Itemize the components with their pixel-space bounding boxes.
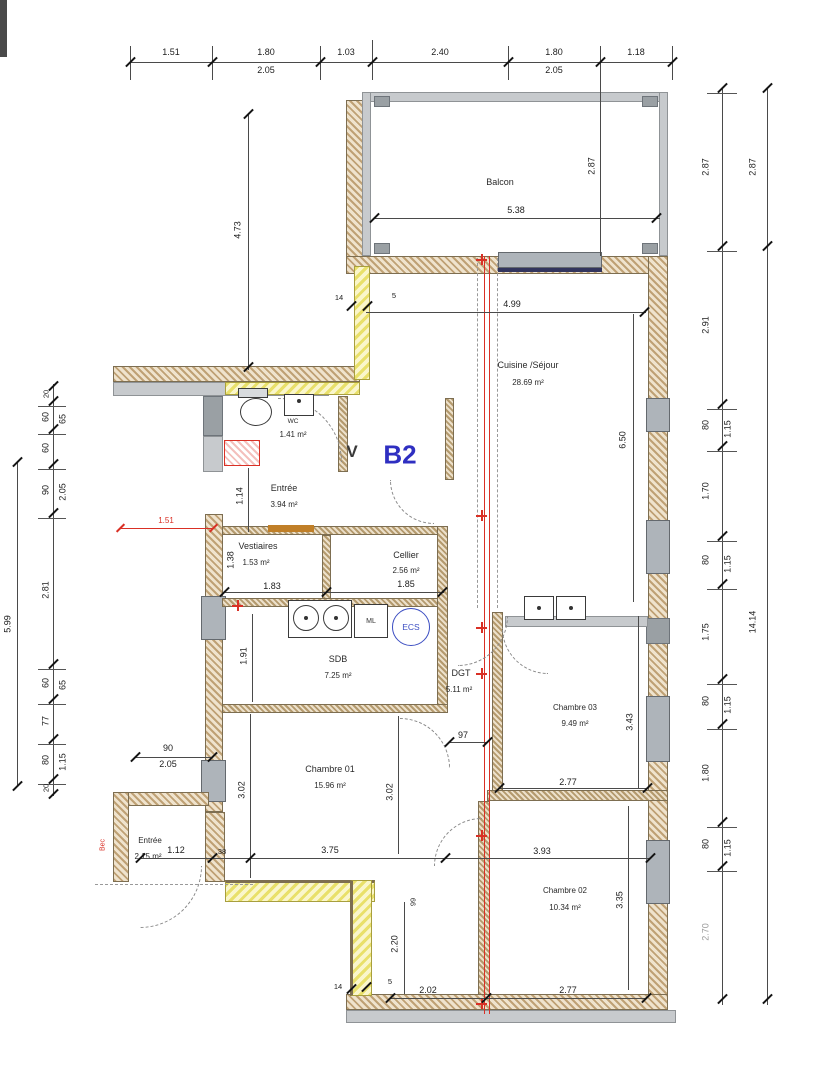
dim-line [53, 384, 54, 796]
balcony-post [374, 243, 390, 254]
dim-stub [38, 669, 66, 670]
door-arc [140, 866, 202, 928]
room-name: Cuisine /Séjour [497, 360, 558, 370]
room-area: 15.96 m² [314, 781, 346, 790]
faucet-dot [297, 399, 301, 403]
wall-segment [113, 366, 360, 382]
balcony-rail [659, 92, 668, 256]
dim-stub [38, 744, 66, 745]
dim-label: 2.05 [257, 66, 275, 75]
dim-label: 80 [702, 839, 711, 849]
dim-guide [600, 46, 601, 256]
window [646, 398, 670, 432]
dim-label: 1.15 [724, 420, 733, 438]
dim-line [398, 716, 399, 854]
drain-dot [569, 606, 573, 610]
dim-stub [38, 518, 66, 519]
dim-label: 1.38 [227, 551, 236, 569]
dim-label: 77 [42, 716, 51, 726]
dim-line [638, 616, 639, 788]
water-heater-label: ECS [402, 622, 419, 632]
room-area: 1.41 m² [279, 430, 306, 439]
dim-stub [707, 251, 737, 252]
dim-label: 80 [702, 696, 711, 706]
drain-dot [334, 616, 338, 620]
toilet-tank [238, 388, 268, 398]
room-area: 2.56 m² [392, 566, 419, 575]
dim-line [628, 806, 629, 990]
room-name: Cellier [393, 550, 419, 560]
room-area: 3.94 m² [270, 500, 297, 509]
dim-label: 1.15 [724, 555, 733, 573]
annotation-red: Bec [100, 839, 107, 851]
dim-label: 2.05 [159, 760, 177, 769]
dim-line [390, 998, 646, 999]
dim-label: 2.20 [391, 935, 400, 953]
dim-label: 1.03 [337, 48, 355, 57]
dim-line [374, 218, 660, 219]
dim-label: 2.87 [588, 157, 597, 175]
dim-label: 2.70 [702, 923, 711, 941]
dim-line [767, 88, 768, 1005]
dim-label: 14 [334, 983, 342, 991]
screen-edge-artifact [0, 0, 7, 57]
dim-label: 2.05 [59, 483, 68, 501]
dim-line-red [120, 528, 214, 529]
balcony-rail [362, 92, 371, 256]
room-name: WC [288, 418, 299, 425]
red-cross-mark [476, 510, 487, 521]
dim-line [248, 468, 249, 532]
dim-line [366, 312, 646, 313]
drain-dot [537, 606, 541, 610]
dim-label: 3.35 [616, 891, 625, 909]
dim-label: 80 [702, 555, 711, 565]
dim-label: 2.87 [702, 158, 711, 176]
dim-stub [707, 729, 737, 730]
dim-label: 1.12 [167, 846, 185, 855]
partition-wall [222, 704, 448, 713]
dim-stub [707, 541, 737, 542]
dim-line [135, 757, 213, 758]
dim-stub [38, 704, 66, 705]
dim-label: 5.99 [4, 615, 13, 633]
dim-line [499, 788, 647, 789]
dim-stub [38, 434, 66, 435]
washing-machine-label: ML [366, 618, 376, 625]
dim-label: 1.15 [59, 753, 68, 771]
unit-label: B2 [383, 440, 416, 471]
dim-label: 60 [42, 443, 51, 453]
dim-label: 20 [42, 390, 50, 398]
dim-label: 3.75 [321, 846, 339, 855]
door-arc [502, 628, 548, 674]
dim-label: 20 [42, 784, 50, 792]
washbasin-icon [284, 394, 314, 416]
wall-segment [113, 792, 129, 882]
dim-stub [707, 451, 737, 452]
guide-line [497, 258, 499, 608]
dim-label: 2.05 [545, 66, 563, 75]
dim-label: 1.83 [263, 582, 281, 591]
door-arc [400, 718, 450, 768]
dim-label: 65 [59, 414, 68, 424]
room-area: 10.34 m² [549, 903, 581, 912]
dim-label: 2.87 [749, 158, 758, 176]
wall-segment [203, 436, 223, 472]
dim-label: 80 [42, 755, 51, 765]
room-area: 28.69 m² [512, 378, 544, 387]
insulation-strip [354, 266, 370, 380]
window-sill [498, 268, 602, 272]
dim-label: 2.77 [559, 986, 577, 995]
window [646, 520, 670, 574]
washing-machine-icon: ML [354, 604, 388, 638]
dim-label: 5.38 [507, 206, 525, 215]
room-name: Balcon [486, 177, 514, 187]
dim-label: 1.15 [724, 696, 733, 714]
dim-label: 90 [42, 485, 51, 495]
dim-label: 97 [458, 731, 468, 740]
balcony-post [374, 96, 390, 107]
dim-label: 1.75 [702, 623, 711, 641]
dim-label: 1.15 [724, 839, 733, 857]
dim-label: 90 [163, 744, 173, 753]
dim-label: 38 [218, 848, 226, 856]
dim-line [140, 858, 650, 859]
red-cross-mark [476, 254, 487, 265]
dim-stub [707, 684, 737, 685]
floor-plan: ML ECS 1.51 1.80 1.03 2.40 1.80 1.18 2.0… [0, 0, 825, 1080]
dim-label: 1.80 [702, 764, 711, 782]
dim-label: 2.40 [431, 48, 449, 57]
dim-label: 14 [335, 294, 343, 302]
dim-label: 1.85 [397, 580, 415, 589]
room-name: Chambre 03 [553, 703, 597, 712]
dim-label: 60 [42, 678, 51, 688]
room-name: SDB [329, 654, 348, 664]
toilet-icon [240, 398, 272, 426]
dim-label: 2.77 [559, 778, 577, 787]
room-name: Entrée [271, 483, 298, 493]
dim-line [248, 114, 249, 370]
dim-stub [707, 827, 737, 828]
insulated-wall [350, 880, 372, 996]
dim-stub [707, 93, 737, 94]
dim-line [633, 314, 634, 602]
dim-label-red: 1.51 [158, 517, 174, 525]
dim-label: 14.14 [749, 611, 758, 634]
room-area: 7.25 m² [324, 671, 351, 680]
dim-label: 4.99 [503, 300, 521, 309]
dim-label: 5 [388, 978, 392, 986]
dim-label: 60 [42, 412, 51, 422]
dim-label: 3.02 [386, 783, 395, 801]
red-cross-mark [476, 668, 487, 679]
dim-label: 1.80 [257, 48, 275, 57]
balcony-door-window [498, 252, 602, 268]
dim-label: 1.70 [702, 482, 711, 500]
partition-wall [445, 398, 454, 480]
dim-label: 65 [59, 680, 68, 690]
guide-line [477, 258, 479, 608]
room-name: Vestiaires [238, 541, 277, 551]
dim-stub [707, 409, 737, 410]
drain-dot [304, 616, 308, 620]
dim-label: 6.50 [619, 431, 628, 449]
dim-stub [38, 469, 66, 470]
window [646, 840, 670, 904]
dim-label: 1.91 [240, 647, 249, 665]
dim-line [224, 592, 444, 593]
dim-label: 3.43 [626, 713, 635, 731]
door-sill [268, 525, 314, 532]
room-area: 1.53 m² [242, 558, 269, 567]
wall-segment [346, 1010, 676, 1023]
room-name: Chambre 02 [543, 886, 587, 895]
partition-wall [222, 526, 445, 535]
dim-line [252, 614, 253, 702]
partition-wall [487, 790, 668, 801]
balcony-rail [362, 92, 668, 102]
door-arc [390, 480, 434, 524]
dim-label: 3.93 [533, 847, 551, 856]
dim-label: 1.18 [627, 48, 645, 57]
dim-label: 2.81 [42, 581, 51, 599]
door-check-mark: V [346, 442, 357, 462]
dim-line [250, 714, 251, 878]
dim-label: 99 [409, 898, 417, 906]
window [646, 696, 670, 762]
dim-label: 80 [702, 420, 711, 430]
dim-label: 1.51 [162, 48, 180, 57]
dim-line [404, 902, 405, 994]
balcony-post [642, 243, 658, 254]
dim-label: 2.91 [702, 316, 711, 334]
room-name: DGT [452, 668, 471, 678]
dim-label: 2.02 [419, 986, 437, 995]
dim-stub [707, 871, 737, 872]
room-area: 5.11 m² [446, 685, 473, 694]
red-cross-mark [232, 600, 243, 611]
window [646, 618, 670, 644]
room-area: 9.49 m² [561, 719, 588, 728]
wall-segment [346, 994, 668, 1010]
dim-line [17, 462, 18, 786]
dim-label: 1.80 [545, 48, 563, 57]
balcony-post [642, 96, 658, 107]
dim-label: 5 [392, 292, 396, 300]
dim-line [450, 742, 488, 743]
water-heater-icon: ECS [392, 608, 430, 646]
dim-label: 4.73 [234, 221, 243, 239]
room-name: Entrée [138, 836, 162, 845]
dim-stub [707, 589, 737, 590]
dim-label: 3.02 [238, 781, 247, 799]
dim-label: 1.14 [236, 487, 245, 505]
room-name: Chambre 01 [305, 764, 355, 774]
technical-shaft [224, 440, 260, 466]
wall-segment [203, 396, 223, 436]
dim-stub [38, 406, 66, 407]
